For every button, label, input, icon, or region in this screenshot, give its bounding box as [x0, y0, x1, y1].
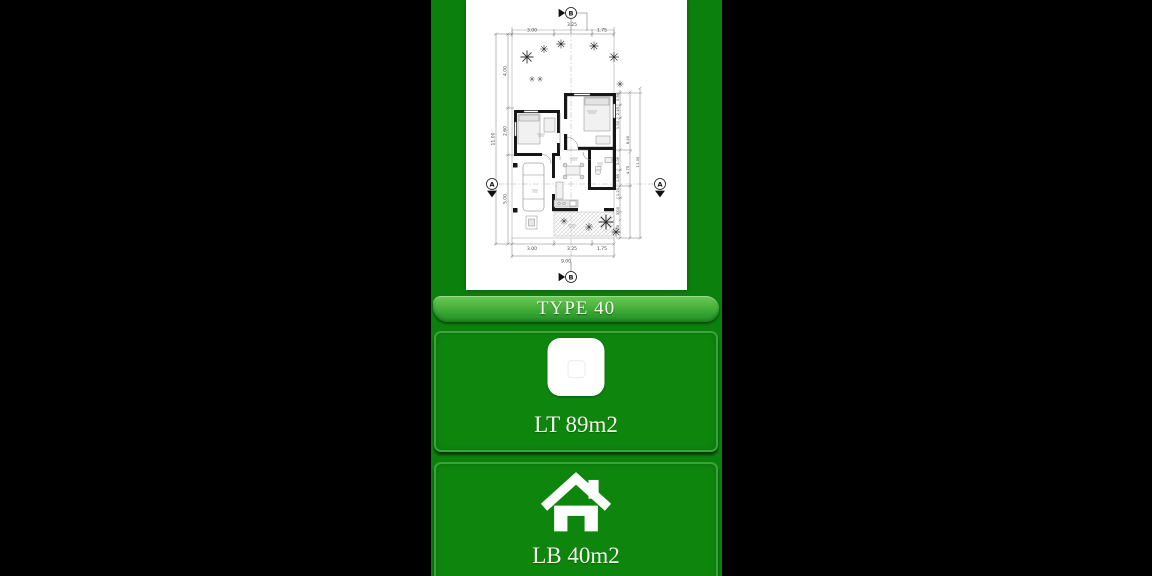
- content-panel: 3.00 3.25 1.75 4.00 2.60 5.00 11.00 3.00…: [431, 0, 722, 576]
- dim-label: 3.00: [615, 206, 620, 215]
- type-banner-label: TYPE 40: [537, 298, 615, 320]
- building-area-card[interactable]: LB 40m2: [434, 462, 718, 576]
- dim-label: 8.40: [625, 135, 630, 144]
- building-area-label: LB 40m2: [436, 543, 716, 569]
- land-area-label: LT 89m2: [436, 412, 716, 438]
- terrace-paving: [554, 212, 614, 236]
- dim-label: 3.00: [527, 246, 537, 252]
- section-marker-a-left: A: [489, 180, 494, 188]
- dim-label: 11.00: [635, 156, 640, 167]
- floorplan-image[interactable]: 3.00 3.25 1.75 4.00 2.60 5.00 11.00 3.00…: [466, 0, 687, 290]
- dim-label: 4.00: [503, 66, 509, 76]
- dim-label: 3.00: [527, 28, 537, 34]
- dim-label: 3.25: [567, 246, 577, 252]
- section-marker-b-bottom: B: [569, 273, 574, 281]
- dim-label: 3.25: [567, 22, 577, 28]
- type-banner: TYPE 40: [433, 296, 719, 322]
- section-marker-a-right: A: [657, 180, 662, 188]
- dim-label: 2.60: [503, 126, 509, 136]
- dim-label: 1.75: [597, 28, 607, 34]
- section-marker-b-top: B: [569, 9, 574, 17]
- land-area-card[interactable]: LT 89m2: [434, 331, 718, 452]
- land-square-icon: [548, 338, 605, 396]
- section-markers: B B A A: [487, 8, 666, 283]
- dim-label: 1.75: [597, 246, 607, 252]
- dim-label: 9.00: [561, 259, 571, 265]
- dim-label: 4.75: [625, 165, 630, 174]
- dim-label: 5.00: [503, 194, 509, 204]
- house-icon: [537, 469, 615, 538]
- floorplan-drawing: 3.00 3.25 1.75 4.00 2.60 5.00 11.00 3.00…: [466, 0, 687, 290]
- square-icon-watermark: [567, 360, 585, 378]
- dim-label: 11.00: [491, 132, 497, 145]
- app-screen: 3.00 3.25 1.75 4.00 2.60 5.00 11.00 3.00…: [0, 0, 1152, 576]
